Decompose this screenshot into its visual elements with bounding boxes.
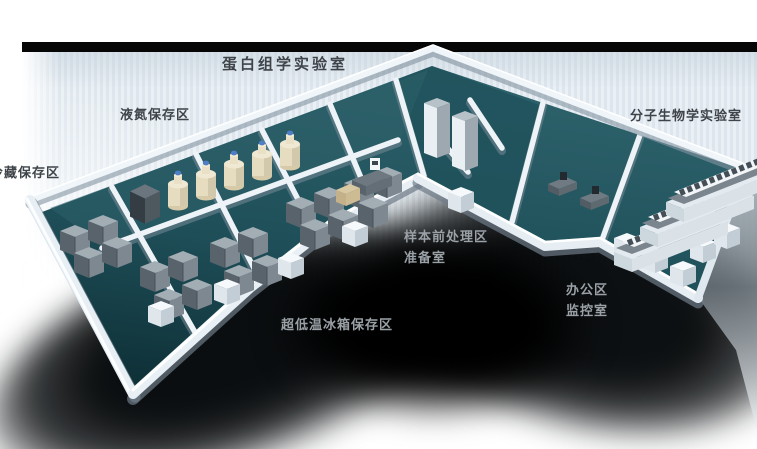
building-render: [0, 0, 757, 449]
label-monitoring-room: 监控室: [566, 305, 608, 318]
label-ulf-freezer-storage: 超低温冰箱保存区: [281, 319, 393, 332]
label-sample-pretreatment: 样本前处理区: [404, 231, 488, 244]
label-cold-storage: 冷藏保存区: [0, 167, 60, 180]
label-molecular-biology-lab: 分子生物学实验室: [630, 110, 742, 123]
label-office-area: 办公区: [566, 284, 608, 297]
label-prep-room: 准备室: [404, 252, 446, 265]
lab-floorplan-stage: 蛋白组学实验室 液氮保存区 冷藏保存区 分子生物学实验室 样本前处理区 准备室 …: [0, 0, 757, 449]
label-proteomics-lab: 蛋白组学实验室: [222, 57, 348, 72]
label-liquid-nitrogen-storage: 液氮保存区: [120, 109, 190, 122]
